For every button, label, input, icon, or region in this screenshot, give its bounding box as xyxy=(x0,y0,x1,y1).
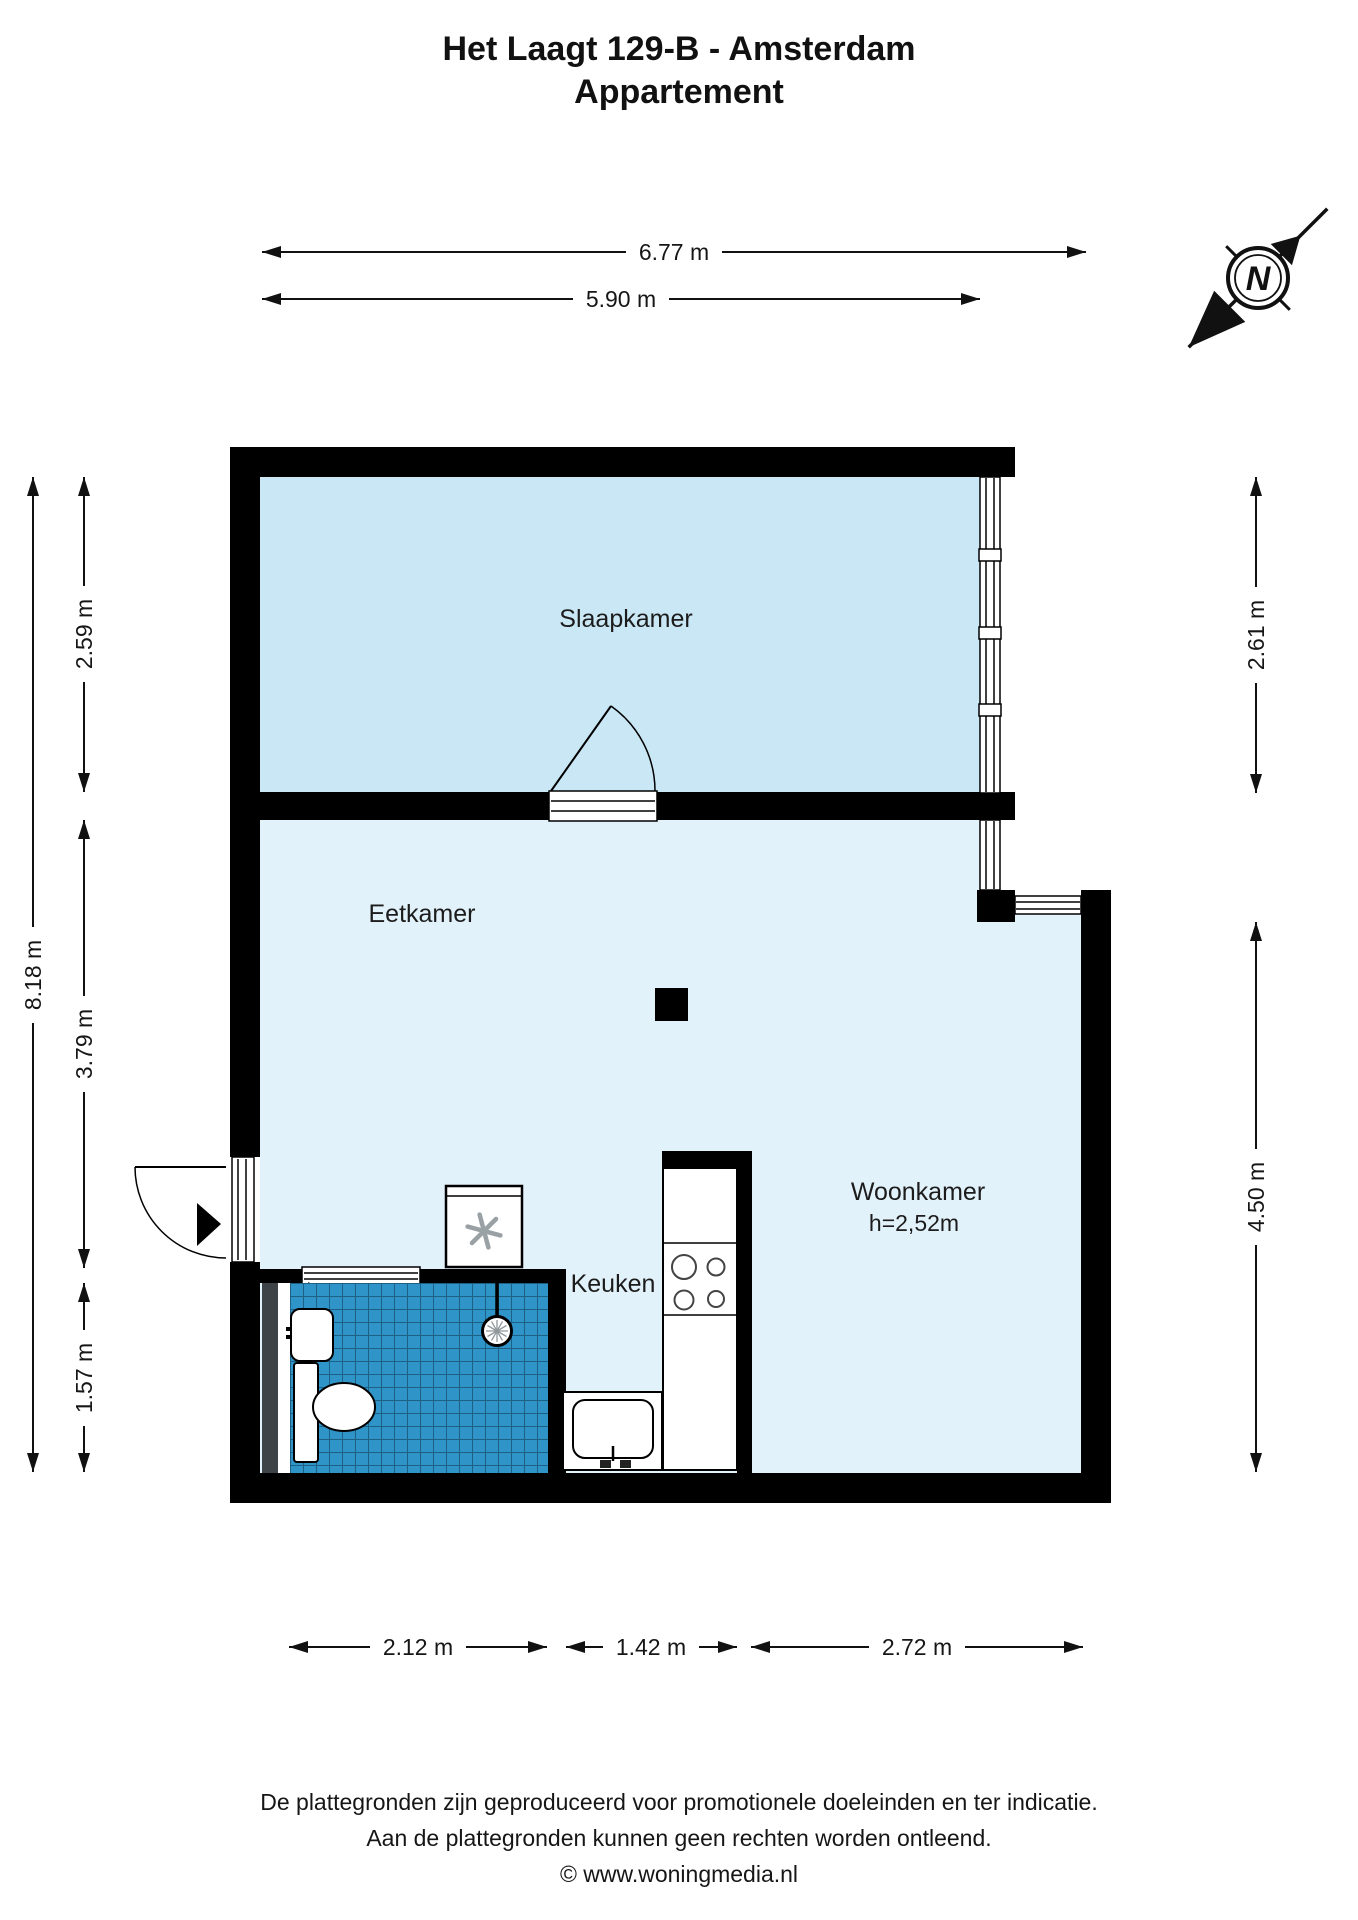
dim-bottom-living: 2.72 m xyxy=(751,1633,1083,1661)
floorplan-canvas: Het Laagt 129-B - Amsterdam Appartement xyxy=(0,0,1358,1920)
dim-bottom-bathroom: 2.12 m xyxy=(289,1633,547,1661)
footer-disclaimer-line2: Aan de plattegronden kunnen geen rechten… xyxy=(366,1825,991,1851)
dim-top-overall: 6.77 m xyxy=(262,238,1086,266)
dim-right-living-label: 4.50 m xyxy=(1243,1162,1269,1232)
kitchen-right-wall xyxy=(737,1168,752,1473)
left-wall-lower xyxy=(230,1262,260,1503)
room-label-eetkamer: Eetkamer xyxy=(369,900,476,928)
bathroom-shaft-gap xyxy=(278,1283,290,1473)
bottom-wall xyxy=(230,1473,1111,1503)
dim-left-bedroom-label: 2.59 m xyxy=(71,599,97,669)
bedroom-window xyxy=(979,477,1001,793)
dim-right-bedroom: 2.61 m xyxy=(1242,477,1270,793)
dining-side-window xyxy=(980,820,1000,890)
entrance-door-frame xyxy=(232,1157,254,1262)
floorplan-page: Het Laagt 129-B - Amsterdam Appartement xyxy=(0,0,1358,1920)
dim-right-bedroom-label: 2.61 m xyxy=(1243,600,1269,670)
bathroom-top-wall-right xyxy=(420,1269,548,1283)
washing-machine xyxy=(446,1186,522,1267)
right-wall-living xyxy=(1081,890,1111,1503)
washbasin xyxy=(286,1309,333,1361)
entrance-arrow-icon xyxy=(197,1203,221,1246)
page-title: Het Laagt 129-B - Amsterdam xyxy=(443,30,916,68)
footer-disclaimer-line1: De plattegronden zijn geproduceerd voor … xyxy=(260,1789,1098,1815)
dim-top-bedroom: 5.90 m xyxy=(262,285,980,313)
top-wall xyxy=(230,447,1015,477)
dim-left-dining-label: 3.79 m xyxy=(71,1009,97,1079)
room-label-woonkamer-height: h=2,52m xyxy=(869,1210,959,1236)
compass-north-icon: N xyxy=(1157,177,1358,379)
dim-top-bedroom-label: 5.90 m xyxy=(586,286,656,312)
dim-left-overall-label: 8.18 m xyxy=(20,940,46,1010)
kitchen-wall-stub xyxy=(662,1151,752,1168)
dim-left-dining: 3.79 m xyxy=(70,820,98,1268)
footer-copyright: © www.woningmedia.nl xyxy=(560,1861,798,1887)
dim-bottom-kitchen: 1.42 m xyxy=(566,1633,737,1661)
dim-bottom-kitchen-label: 1.42 m xyxy=(616,1634,686,1660)
dim-left-bedroom: 2.59 m xyxy=(70,477,98,792)
bathroom-shaft xyxy=(262,1283,278,1473)
room-label-slaapkamer: Slaapkamer xyxy=(559,605,692,633)
left-wall-upper xyxy=(230,447,260,1157)
bathroom-top-wall-left xyxy=(260,1269,302,1283)
dim-bottom-living-label: 2.72 m xyxy=(882,1634,952,1660)
dim-bottom-bathroom-label: 2.12 m xyxy=(383,1634,453,1660)
structural-column xyxy=(655,988,688,1021)
dim-top-overall-label: 6.77 m xyxy=(639,239,709,265)
kitchen-sink-counter xyxy=(563,1392,662,1470)
page-subtitle: Appartement xyxy=(574,73,784,111)
dim-left-bathroom-label: 1.57 m xyxy=(71,1343,97,1413)
dim-right-living: 4.50 m xyxy=(1242,922,1270,1472)
bedroom-door-frame xyxy=(549,791,657,821)
dim-left-bathroom: 1.57 m xyxy=(70,1283,98,1472)
room-label-woonkamer: Woonkamer xyxy=(851,1178,985,1206)
room-label-keuken: Keuken xyxy=(571,1270,656,1298)
bathroom-door-frame xyxy=(302,1267,420,1285)
bedroom-divider-wall-right xyxy=(655,792,1015,820)
entrance-door-swing xyxy=(135,1167,226,1258)
living-top-window xyxy=(1015,896,1081,914)
dim-left-overall: 8.18 m xyxy=(19,477,47,1472)
kitchen-counter-column xyxy=(663,1168,737,1470)
compass-north-label: N xyxy=(1246,260,1272,298)
bedroom-floor xyxy=(260,477,983,793)
bedroom-divider-wall-left xyxy=(260,792,551,820)
corner-wall-block xyxy=(977,890,1015,922)
